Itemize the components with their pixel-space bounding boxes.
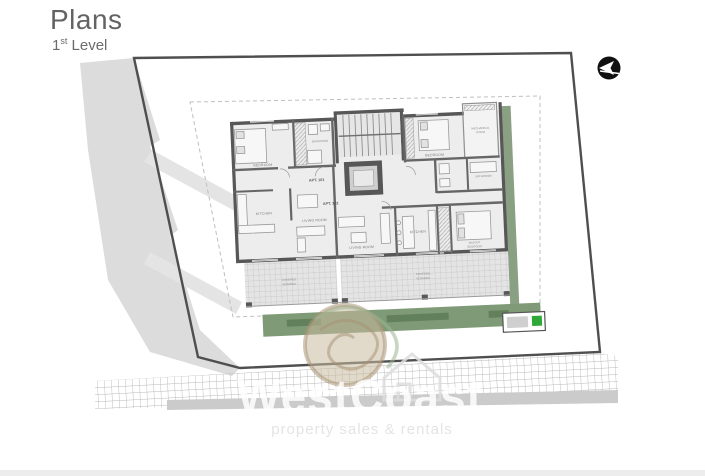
neighbor-land <box>80 58 240 376</box>
label-apt102-kitchen: KITCHEN <box>410 230 427 235</box>
label-veranda2-2: VERANDA <box>416 276 430 281</box>
wardrobe-master <box>438 208 451 252</box>
site-plan-drawing: BEDROOM BATHROOM KITCHEN LIVING ROOM APT… <box>0 0 705 476</box>
watermark-tagline: property sales & rentals <box>271 421 453 438</box>
staircase <box>338 113 402 158</box>
label-apt101-bedroom: BEDROOM <box>253 163 272 168</box>
label-apt102-id: APT. 102 <box>323 201 339 206</box>
label-apt101-bathroom: BATHROOM <box>312 139 329 144</box>
label-apt102-bathroom: BATHROOM <box>476 174 493 179</box>
wardrobe-apt102-bedroom <box>405 118 415 158</box>
utility-pad <box>507 316 528 328</box>
watermark-brand: WestCoast <box>237 370 483 422</box>
building: BEDROOM BATHROOM KITCHEN LIVING ROOM APT… <box>230 101 546 344</box>
label-apt102-bedroom: BEDROOM <box>425 153 444 158</box>
label-veranda1-2: VERANDA <box>282 282 296 287</box>
elevator <box>344 160 383 196</box>
wardrobe-apt101 <box>294 123 307 165</box>
label-master-2: BEDROOM <box>467 244 482 249</box>
page-bottom-strip <box>0 470 705 476</box>
mechanical-equipment <box>465 104 495 110</box>
label-apt101-id: APT. 101 <box>309 178 325 183</box>
floor-plan-page: Plans 1st Level <box>0 0 705 476</box>
north-arrow-icon <box>598 57 621 80</box>
label-apt101-kitchen: KITCHEN <box>256 211 273 216</box>
utility-unit-green <box>532 316 542 326</box>
label-mechanical-2: ROOM <box>476 130 486 134</box>
